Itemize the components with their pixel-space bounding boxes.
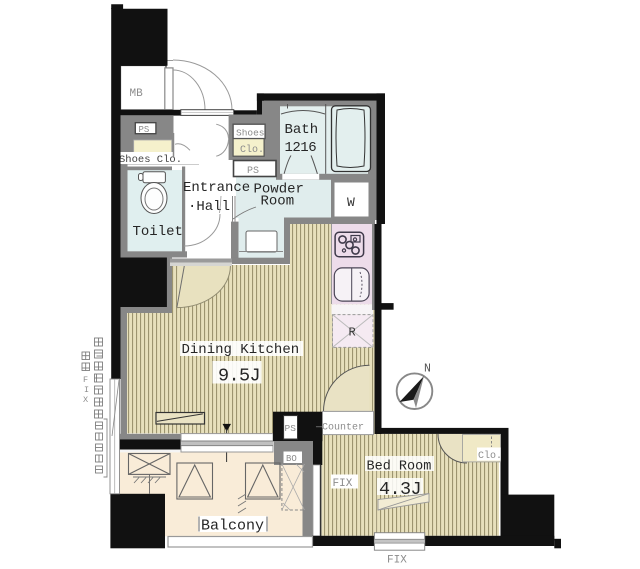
svg-text:FIX: FIX xyxy=(333,478,353,490)
svg-text:R: R xyxy=(349,326,356,340)
svg-text:Clo.: Clo. xyxy=(240,144,264,156)
svg-text:PS: PS xyxy=(247,166,259,177)
svg-text:1216: 1216 xyxy=(285,140,317,156)
svg-text:Bed Room: Bed Room xyxy=(367,460,432,475)
svg-text:X: X xyxy=(83,395,88,405)
svg-text:Toilet: Toilet xyxy=(133,224,183,240)
svg-text:9.5J: 9.5J xyxy=(218,366,260,387)
svg-text:·Hall: ·Hall xyxy=(188,199,230,215)
svg-text:PS: PS xyxy=(139,125,150,135)
svg-text:Balcony: Balcony xyxy=(201,518,264,535)
svg-text:Dining Kitchen: Dining Kitchen xyxy=(182,342,300,358)
svg-text:Clo.: Clo. xyxy=(478,450,502,462)
svg-text:I: I xyxy=(84,385,89,395)
svg-text:MB: MB xyxy=(130,88,144,100)
svg-text:—Counter: —Counter xyxy=(315,423,364,434)
svg-text:PS: PS xyxy=(285,423,297,434)
svg-text:Room: Room xyxy=(261,194,295,210)
svg-text:F: F xyxy=(83,375,88,385)
svg-text:W: W xyxy=(347,195,355,210)
svg-text:Bath: Bath xyxy=(285,122,319,138)
svg-text:N: N xyxy=(424,363,431,376)
svg-text:Shoes: Shoes xyxy=(236,128,265,139)
svg-text:BO: BO xyxy=(286,454,297,464)
svg-text:FIX: FIX xyxy=(387,555,407,567)
svg-text:Entrance: Entrance xyxy=(183,180,250,196)
svg-text:Shoes Clo.: Shoes Clo. xyxy=(119,154,182,166)
